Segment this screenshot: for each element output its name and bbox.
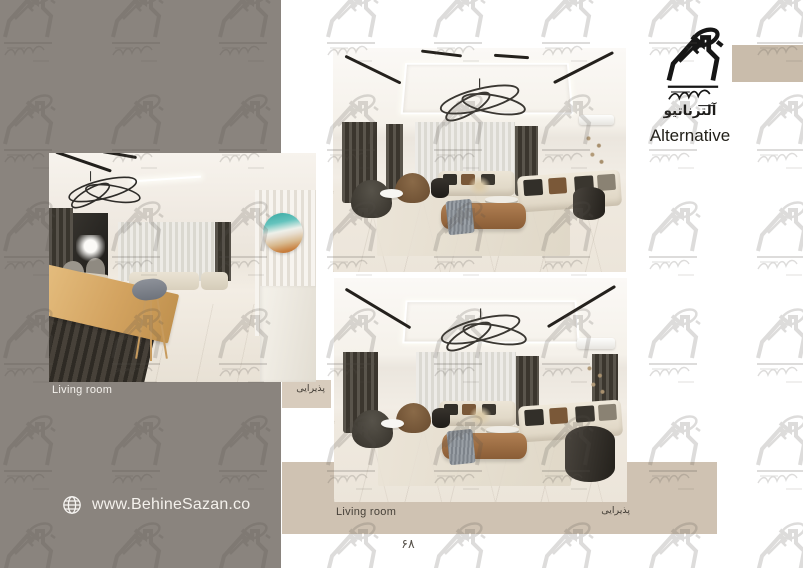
flower-vase: [76, 235, 105, 262]
coffee-table: [485, 196, 517, 203]
pampas-decor: [468, 176, 491, 196]
watermark-house-icon: [746, 306, 803, 390]
drum-side-table: [431, 178, 449, 198]
bottom-photo-caption: Living room: [336, 506, 396, 518]
watermark-house-icon: [746, 92, 803, 176]
watermark-house-icon: [746, 520, 803, 568]
portfolio-page: Living room پذیرایی Living room پذیرایی …: [0, 0, 803, 568]
left-photo-living-room: [49, 153, 316, 382]
left-photo-caption: Living room: [52, 384, 112, 396]
cushion: [597, 404, 617, 421]
left-photo-persian-label: پذیرایی: [282, 380, 331, 408]
drum-side-table: [432, 408, 450, 428]
website-link[interactable]: www.BehineSazan.co: [92, 496, 250, 514]
armchair: [352, 410, 393, 448]
top-right-beige-block: [732, 45, 803, 82]
brand-title-persian: آلترناتیو: [640, 103, 740, 119]
page-number: ۶۸: [378, 536, 438, 551]
sofa: [201, 272, 228, 290]
stool-leg: [150, 300, 152, 362]
armchair: [396, 403, 431, 432]
armchair: [395, 173, 430, 202]
drum-side-table: [573, 187, 605, 221]
track-light: [344, 55, 401, 85]
reception-desk: [260, 286, 316, 382]
cushion: [547, 177, 567, 194]
brand-logo: [656, 26, 730, 106]
drum-side-table: [565, 426, 615, 482]
house-logo-icon: [656, 26, 730, 114]
chandelier: [422, 305, 539, 359]
wall-branch-decal: [583, 363, 609, 399]
cushion: [524, 409, 544, 426]
armchair: [351, 180, 392, 218]
chandelier: [421, 75, 538, 129]
track-light: [421, 50, 462, 58]
left-photo-caption-fa: پذیرایی: [296, 383, 325, 394]
track-light-rail: [345, 288, 412, 330]
footer-website: www.BehineSazan.co: [62, 495, 250, 515]
top-photo-living-room: [333, 48, 626, 272]
throw-blanket: [447, 429, 477, 465]
watermark-house-icon: [638, 306, 708, 390]
cushion: [548, 407, 568, 424]
bottom-photo-caption-fa: پذیرایی: [560, 505, 630, 516]
globe-icon: [62, 495, 82, 515]
coffee-table: [486, 426, 518, 433]
bottom-photo-living-room: [334, 278, 627, 502]
wall-branch-decal: [582, 133, 608, 169]
throw-blanket: [446, 199, 476, 235]
air-conditioner: [579, 115, 614, 125]
cushion: [523, 179, 543, 196]
watermark-house-icon: [638, 199, 708, 283]
watermark-house-icon: [746, 413, 803, 497]
track-light: [494, 53, 529, 58]
watermark-house-icon: [746, 199, 803, 283]
brand-title-english: Alternative: [630, 126, 750, 146]
track-light: [102, 153, 137, 159]
air-conditioner: [577, 338, 615, 348]
pampas-decor: [469, 406, 492, 426]
cushion: [575, 405, 595, 422]
